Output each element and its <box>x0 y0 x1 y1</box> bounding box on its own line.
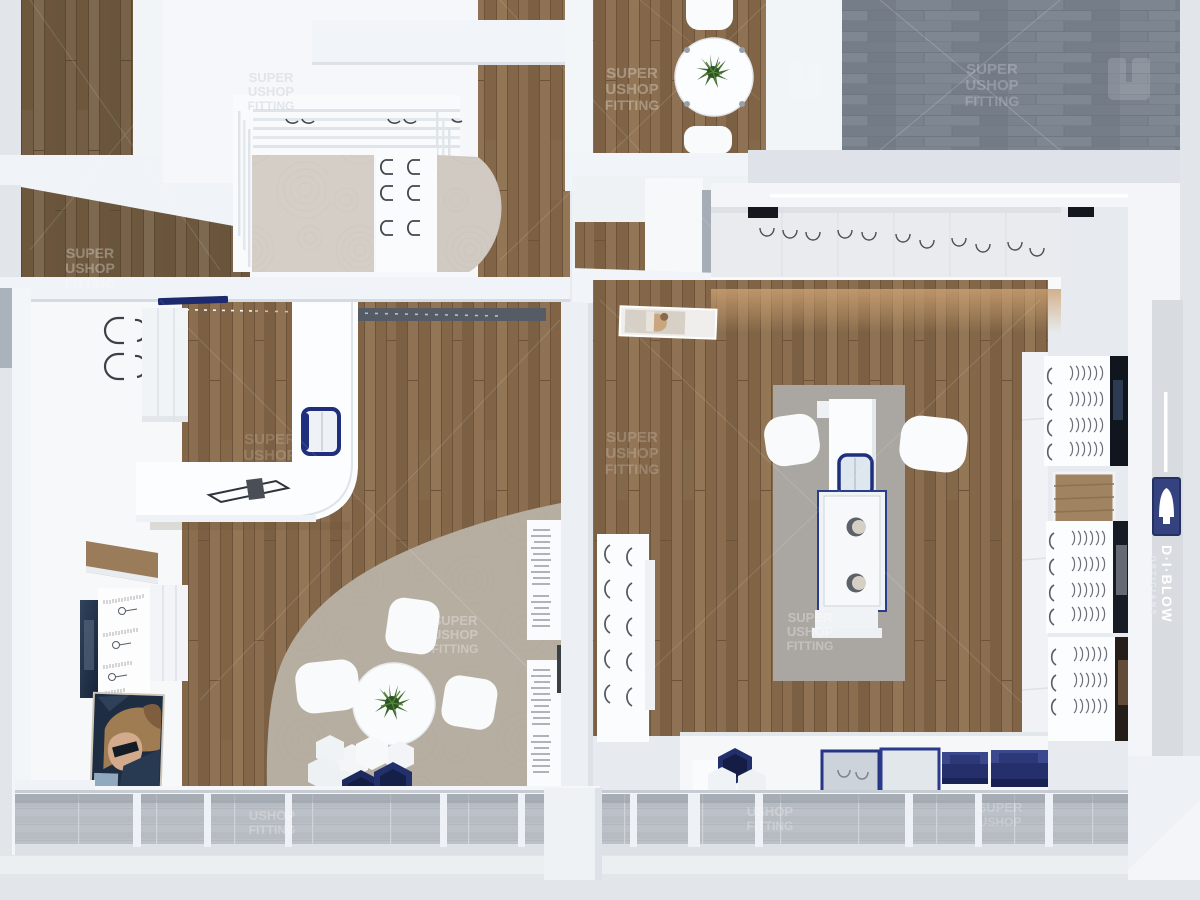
svg-text:SUPER: SUPER <box>606 65 658 82</box>
svg-text:OPTICIANS: OPTICIANS <box>1149 556 1156 617</box>
svg-text:FITTING: FITTING <box>747 819 794 833</box>
svg-text:FITTING: FITTING <box>605 97 660 113</box>
svg-text:USHOP: USHOP <box>605 445 658 462</box>
svg-text:FITTING: FITTING <box>432 642 479 656</box>
svg-text:SUPER: SUPER <box>66 245 114 261</box>
svg-text:FITTING: FITTING <box>248 99 295 113</box>
svg-text:USHOP: USHOP <box>248 84 295 99</box>
svg-text:USHOP: USHOP <box>249 808 296 823</box>
svg-text:SUPER: SUPER <box>788 610 833 625</box>
svg-text:USHOP: USHOP <box>432 627 479 642</box>
svg-text:SUPER: SUPER <box>433 613 478 628</box>
svg-text:FITTING: FITTING <box>965 93 1020 109</box>
svg-text:FITTING: FITTING <box>605 461 660 477</box>
svg-text:USHOP: USHOP <box>965 77 1018 94</box>
svg-text:SUPER: SUPER <box>966 61 1018 78</box>
svg-text:FITTING: FITTING <box>243 463 298 479</box>
svg-text:FITTING: FITTING <box>249 823 296 837</box>
svg-text:SUPER: SUPER <box>244 431 296 448</box>
svg-text:USHOP: USHOP <box>243 447 296 464</box>
svg-text:D·I·BLOW: D·I·BLOW <box>1159 545 1175 623</box>
svg-text:SUPER: SUPER <box>249 70 294 85</box>
svg-text:USHOP: USHOP <box>747 804 794 819</box>
svg-text:SUPER: SUPER <box>978 800 1023 815</box>
svg-text:FITTING: FITTING <box>787 639 834 653</box>
svg-text:USHOP: USHOP <box>605 81 658 98</box>
svg-text:USHOP: USHOP <box>65 260 115 276</box>
svg-text:USHOP: USHOP <box>787 624 834 639</box>
svg-text:USHOP: USHOP <box>979 815 1022 829</box>
svg-text:FITTING: FITTING <box>65 276 116 291</box>
svg-text:SUPER: SUPER <box>606 429 658 446</box>
